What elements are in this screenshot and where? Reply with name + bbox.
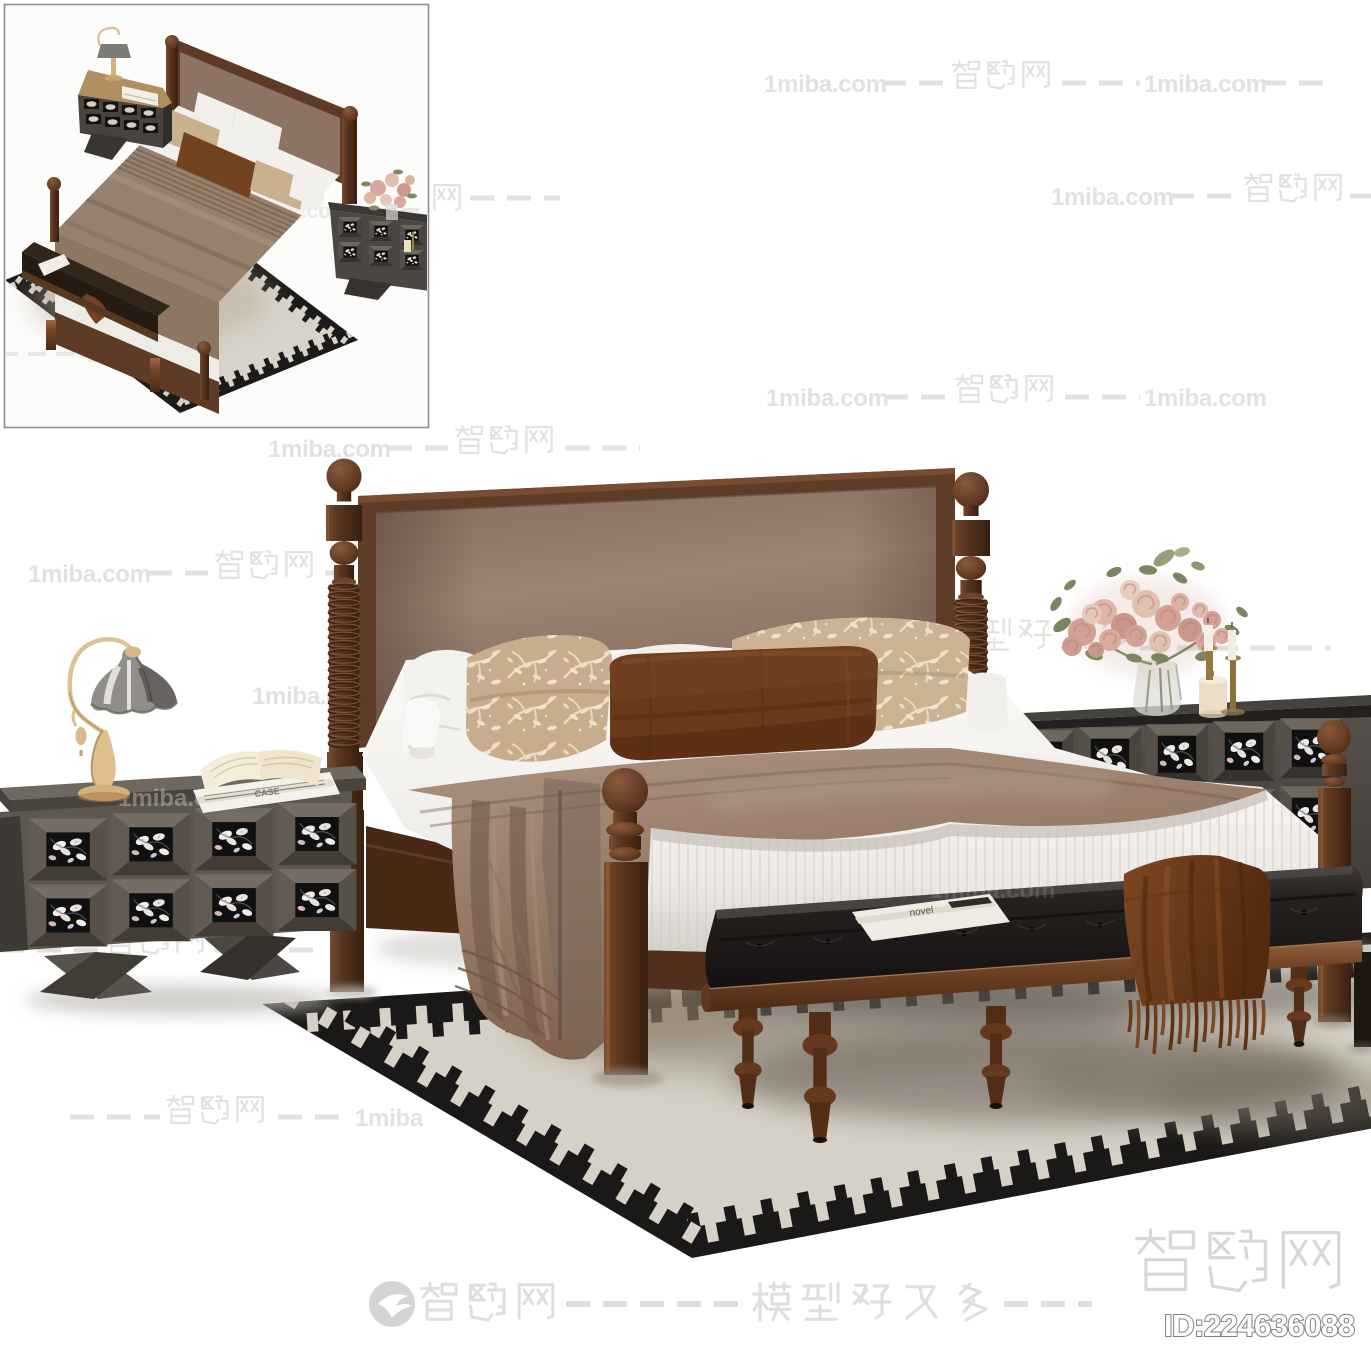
svg-text:1miba: 1miba — [355, 1105, 424, 1132]
svg-text:1miba.com: 1miba.com — [1144, 71, 1267, 98]
svg-text:1miba.com: 1miba.com — [1051, 184, 1174, 211]
svg-text:1miba.com: 1miba.com — [766, 385, 889, 412]
svg-text:1miba.com: 1miba.com — [1144, 385, 1267, 412]
svg-text:1miba.com: 1miba.com — [764, 71, 887, 98]
svg-text:1miba.com: 1miba.com — [930, 877, 1055, 904]
svg-text:1miba.com: 1miba.com — [28, 561, 151, 588]
svg-text:1miba.com: 1miba.com — [268, 436, 391, 463]
svg-text:ID:224636088: ID:224636088 — [1164, 1308, 1355, 1343]
